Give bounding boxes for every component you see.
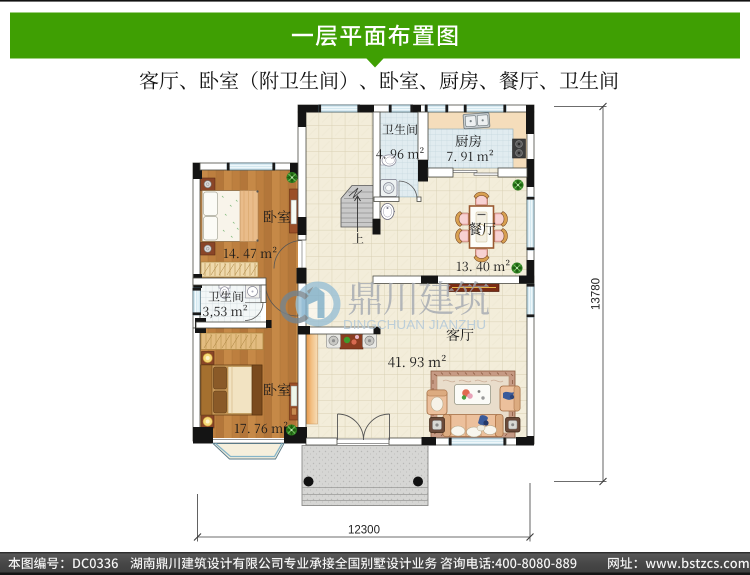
svg-text:DINGCHUAN JIANZHU: DINGCHUAN JIANZHU xyxy=(343,318,486,332)
svg-text:12300: 12300 xyxy=(348,525,380,537)
svg-text:13780: 13780 xyxy=(591,278,603,310)
